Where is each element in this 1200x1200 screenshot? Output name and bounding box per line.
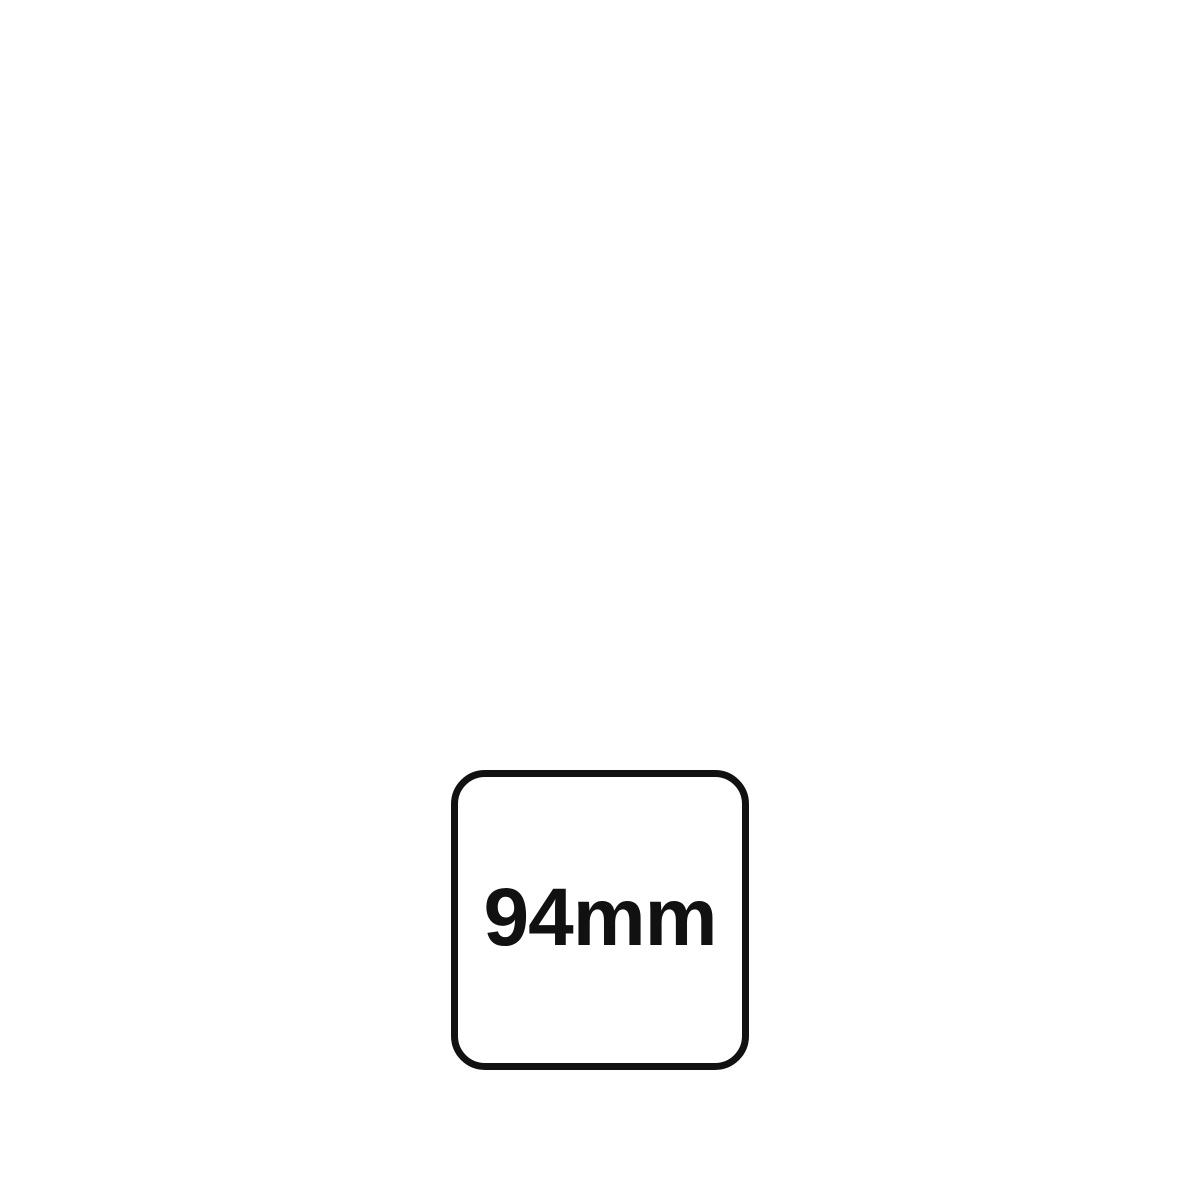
- dimension-badge: 94mm: [451, 770, 749, 1070]
- dimension-label: 94mm: [483, 877, 716, 959]
